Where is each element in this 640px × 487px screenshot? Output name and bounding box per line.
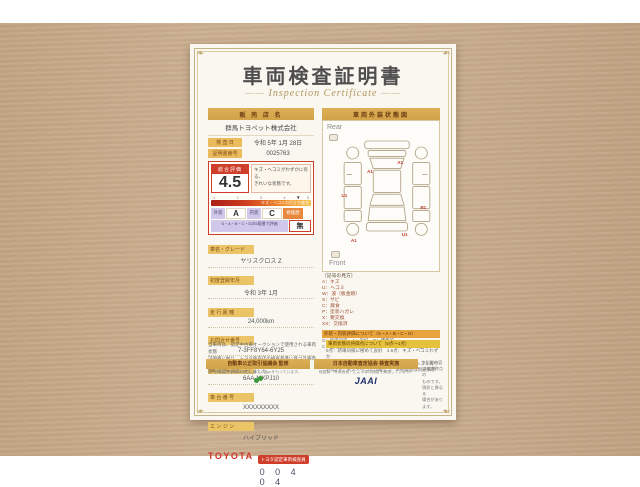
- car-rear-icon: [329, 134, 338, 141]
- certificate-subtitle: Inspection Certificate: [190, 88, 456, 99]
- jaai-sub: 検査員（有資格者）による車両検査を実施しています。: [314, 370, 418, 375]
- footer-disclaimer: ※記載内容は検査時点の ものです。現状と異なる 場合があります。: [422, 359, 444, 410]
- exterior-interior-row: 外装 A 内装 C 修復歴: [211, 208, 311, 219]
- detail-label: 車名・グレード: [208, 245, 254, 254]
- ornament-corner-icon: ❧: [196, 405, 204, 415]
- car-condition-diagram: Rear Front: [322, 120, 440, 272]
- inspection-date-value: 令和 5年 1月 28日: [242, 138, 314, 147]
- symbol-legend: 〔記号の見方〕 A：キズ U：ヘコミ W：波（板金跡） S：サビ C：腐食 P：…: [322, 274, 440, 328]
- certificate-number-value: 0025763: [242, 151, 314, 157]
- ornament-corner-icon: ❧: [442, 49, 450, 59]
- jaai-block: 日本自動車査定協会 検査実施 検査員（有資格者）による車両検査を実施しています。…: [314, 359, 418, 386]
- toyota-certification: TOYOTA トヨタ認定車両検査員 0 0 4 0 4: [208, 448, 314, 487]
- gauge-tick: 2: [236, 195, 238, 200]
- detail-value: ハイブリッド: [208, 433, 314, 445]
- overall-score: 4.5: [212, 174, 248, 192]
- dealer-header: 販 売 店 名: [208, 108, 314, 120]
- evaluation-note-line1: キズ・ヘコミがわずかに有る、: [254, 167, 308, 181]
- damage-marker: A1: [351, 238, 357, 243]
- inspection-date-row: 検 査 日 令和 5年 1月 28日: [208, 138, 314, 147]
- statement-line1: 当車両は、認定中古車オークションで使用される車両状態: [208, 342, 320, 356]
- overall-evaluation-box: 総合評価 4.5 キズ・ヘコミがわずかに有る、 きれいな状態です。 1 2 3 …: [208, 161, 314, 235]
- diagram-header: 車両外装状態図: [322, 108, 440, 120]
- overall-evaluation-label: 総合評価: [212, 165, 248, 174]
- detail-row: 初度登録年月 令和 3年 1月: [208, 269, 314, 299]
- gauge-tick: 5: [307, 195, 309, 200]
- certificate-number-label: 証明書番号: [208, 149, 242, 158]
- exterior-grade: A: [226, 208, 246, 219]
- certificate-title: 車両検査証明書: [190, 60, 456, 89]
- gauge-bar: ▼ キズ・ヘコミの目立ち度合: [211, 200, 311, 206]
- unfolded-car-diagram: [339, 125, 435, 265]
- photo-letterbox-top: [0, 0, 640, 23]
- detail-row: 走 行 距 離 24,000km: [208, 301, 314, 328]
- ornament-corner-icon: ❧: [196, 49, 204, 59]
- detail-value: 24,000km: [208, 319, 314, 328]
- repair-history-label: 修復歴: [283, 208, 303, 219]
- toyota-logo: TOYOTA: [208, 451, 254, 461]
- repair-history-value: 無: [289, 220, 311, 232]
- certificate-number-row: 証明書番号 0025763: [208, 149, 314, 158]
- detail-value: 令和 3年 1月: [208, 287, 314, 299]
- right-column: 車両外装状態図 Rear Front: [322, 108, 440, 350]
- eco-mark-icon: [254, 376, 263, 385]
- interior-label: 内装: [247, 208, 261, 219]
- overall-score-cell: 総合評価 4.5: [211, 164, 249, 193]
- certified-inspector-badge: トヨタ認定車両検査員: [258, 455, 309, 464]
- inspector-number: 0 0 4 0 4: [260, 467, 314, 487]
- disclaimer-line1: ※記載内容は検査時点の: [422, 360, 444, 379]
- score-gauge: 1 2 3 4 5 ▼ キズ・ヘコミの目立ち度合: [211, 195, 311, 206]
- detail-label: 初度登録年月: [208, 276, 254, 285]
- disclaimer-line2: ものです。現状と異なる: [422, 379, 444, 398]
- inspection-date-label: 検 査 日: [208, 138, 242, 147]
- fair-trade-council-sub: 中古自動車表示規約に基づく表示を行っています。: [206, 370, 310, 375]
- detail-value: ヤリスクロス Z: [208, 256, 314, 268]
- fair-trade-council-bar: 自動車公正取引協議会 監修: [206, 359, 310, 369]
- criteria-header: 車両状態の評価点について（5点～1点）: [326, 340, 440, 348]
- certificate-footer: 自動車公正取引協議会 監修 中古自動車表示規約に基づく表示を行っています。 日本…: [206, 359, 444, 410]
- fair-trade-council-block: 自動車公正取引協議会 監修 中古自動車表示規約に基づく表示を行っています。: [206, 359, 310, 385]
- dealer-name: 群馬トヨペット株式会社: [208, 120, 314, 136]
- gauge-tick: 4: [283, 195, 285, 200]
- disclaimer-line3: 場合があります。: [422, 397, 444, 410]
- damage-marker: U1: [402, 232, 408, 237]
- detail-row: エ ン ジ ン ハイブリッド: [208, 415, 314, 445]
- detail-label: エ ン ジ ン: [208, 422, 254, 431]
- left-column: 販 売 店 名 群馬トヨペット株式会社 検 査 日 令和 5年 1月 28日 証…: [208, 108, 314, 487]
- legend-line: XX：交換済: [322, 322, 440, 328]
- gauge-tick: 3: [260, 195, 262, 200]
- photo-letterbox-bottom: [0, 456, 640, 480]
- jaai-bar: 日本自動車査定協会 検査実施: [314, 359, 418, 369]
- gauge-overlay-text: キズ・ヘコミの目立ち度合: [261, 200, 309, 206]
- detail-label: 走 行 距 離: [208, 308, 254, 317]
- detail-row: 車名・グレード ヤリスクロス Z: [208, 238, 314, 268]
- damage-marker: B1: [420, 205, 426, 210]
- grade-scale-row: S・A・B・C・Dの5段階で評価 無: [211, 220, 311, 232]
- interior-grade: C: [262, 208, 282, 219]
- evaluation-note-line2: きれいな状態です。: [254, 181, 308, 188]
- grade-note-header: 外装・内装評価について（S・A・B・C・D）: [322, 330, 440, 338]
- evaluation-note: キズ・ヘコミがわずかに有る、 きれいな状態です。: [251, 164, 311, 193]
- jaai-logo: JAAI: [314, 376, 418, 386]
- gauge-tick: 1: [213, 195, 215, 200]
- grade-scale-note: S・A・B・C・Dの5段階で評価: [211, 220, 288, 232]
- damage-marker: A1: [397, 160, 403, 165]
- inspection-certificate: ❧ ❧ ❧ ❧ 車両検査証明書 Inspection Certificate 販…: [190, 44, 456, 420]
- exterior-label: 外装: [211, 208, 225, 219]
- damage-marker: A1: [367, 169, 373, 174]
- damage-marker: U1: [342, 193, 348, 198]
